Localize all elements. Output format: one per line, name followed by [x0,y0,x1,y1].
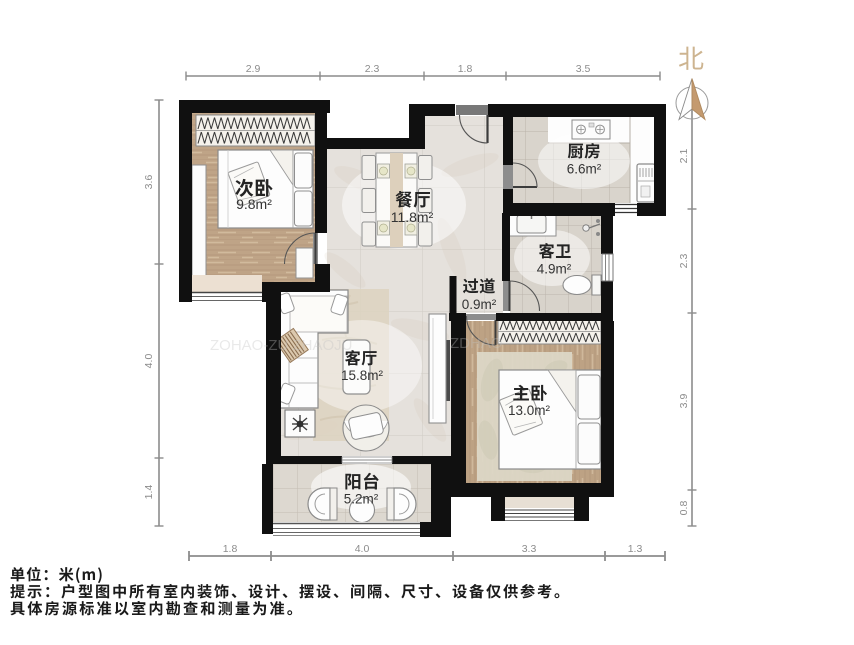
svg-text:6.6m²: 6.6m² [567,162,602,177]
svg-text:3.3: 3.3 [522,543,537,555]
svg-text:ZOHAO-ZU ZHAOJU: ZOHAO-ZU ZHAOJU [210,337,353,354]
svg-text:3.9: 3.9 [678,394,690,409]
svg-text:0.9m²: 0.9m² [462,297,497,312]
svg-text:2.9: 2.9 [246,63,261,75]
svg-text:1.3: 1.3 [628,543,643,555]
svg-text:0.8: 0.8 [678,501,690,516]
svg-text:15.8m²: 15.8m² [341,368,384,383]
svg-text:5.2m²: 5.2m² [344,492,379,507]
svg-text:1.8: 1.8 [458,63,473,75]
svg-text:1.8: 1.8 [223,543,238,555]
svg-text:2.1: 2.1 [678,149,690,164]
svg-text:2.3: 2.3 [365,63,380,75]
svg-text:1.4: 1.4 [143,485,155,500]
svg-text:3.6: 3.6 [143,175,155,190]
svg-text:13.0m²: 13.0m² [508,403,551,418]
svg-text:11.8m²: 11.8m² [391,209,434,225]
svg-text:4.0: 4.0 [355,543,370,555]
svg-text:4.0: 4.0 [143,354,155,369]
svg-text:9.8m²: 9.8m² [236,196,272,212]
svg-text:4.9m²: 4.9m² [537,261,572,276]
svg-text:2.3: 2.3 [678,254,690,269]
svg-text:ZDHAO: ZDHAO [450,335,503,352]
svg-text:3.5: 3.5 [576,63,591,75]
